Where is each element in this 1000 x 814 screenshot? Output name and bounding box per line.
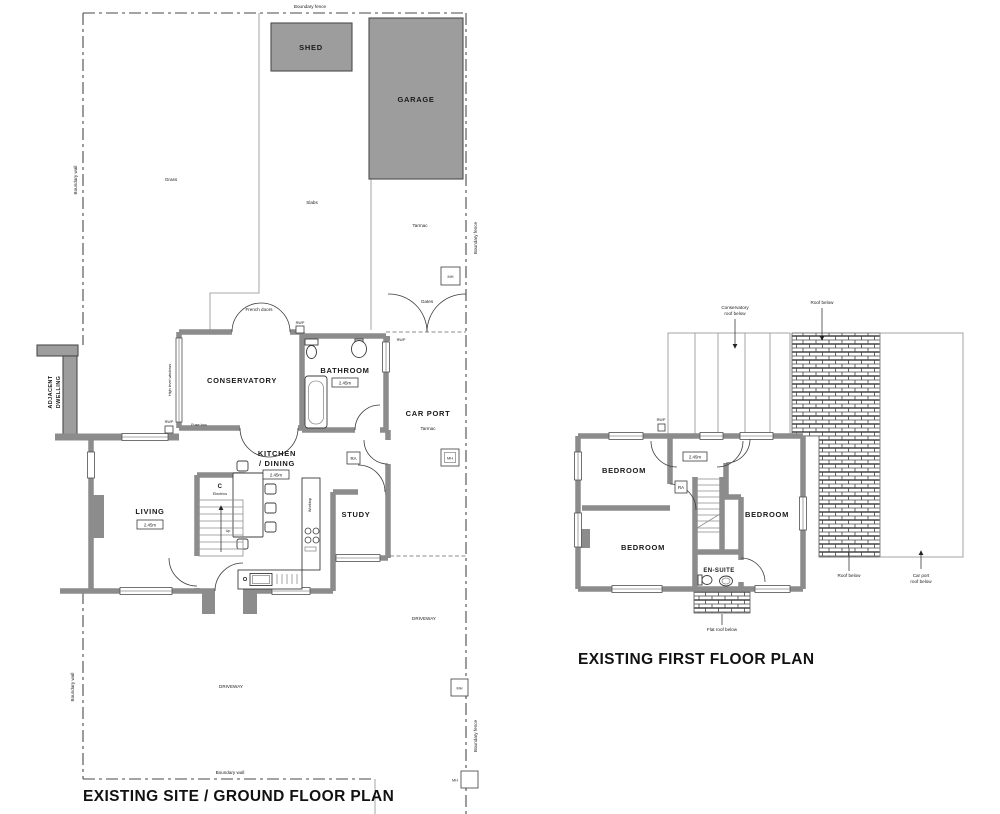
manhole-top: MH — [441, 267, 460, 285]
high-level-windows-label: High level windows — [168, 364, 172, 396]
driveway-label-east: DRIVEWAY — [412, 616, 436, 621]
chair — [237, 539, 248, 549]
room-label-kitchen: KITCHEN — [258, 449, 296, 458]
adjacent-dwelling-wall-side — [63, 356, 77, 437]
kitchen-height-tag: 2.45m — [263, 470, 289, 479]
manhole-top-label: MH — [448, 275, 454, 279]
wash-basin — [352, 341, 367, 358]
room-label-bedroom-2: BEDROOM — [621, 543, 665, 552]
conservatory-roof-label-2: roof below — [724, 311, 746, 316]
grass-label: Grass — [165, 177, 178, 182]
room-label-car-port: CAR PORT — [406, 409, 451, 418]
tarmac-label: Tarmac — [412, 223, 428, 228]
svg-text:2.45m: 2.45m — [144, 522, 157, 527]
manhole-right-mid-label: MH — [457, 687, 463, 691]
adjacent-dwelling: ADJACENT DWELLING — [37, 345, 78, 437]
stairs-first — [697, 479, 720, 550]
room-label-dining: / DINING — [259, 459, 295, 468]
porch-pillar-left — [202, 592, 215, 614]
room-label-bedroom-1: BEDROOM — [602, 466, 646, 475]
rwp-living-west: RWP — [165, 420, 174, 433]
rwp-first: RWP — [657, 418, 666, 431]
car-port-roof — [880, 333, 963, 557]
wash-basin — [720, 576, 733, 586]
manhole-car-port: MH — [441, 449, 459, 466]
shed-label: SHED — [299, 43, 323, 52]
toilet-cistern — [305, 339, 318, 345]
dining-table — [233, 473, 263, 537]
ground-floor-plan: Up CONSERVATORY BATHROOM 2.45m KITCHEN /… — [55, 303, 406, 614]
ground-floor-title: EXISTING SITE / GROUND FLOOR PLAN — [83, 788, 394, 805]
electrics-label: Electrics — [213, 492, 227, 496]
toilet-bowl — [307, 346, 317, 359]
adjacent-dwelling-wall-top — [37, 345, 78, 356]
chair — [265, 503, 276, 513]
svg-text:RWP: RWP — [296, 321, 305, 325]
boundary-wall-bottom-label: Boundary wall — [216, 770, 245, 775]
tiled-roof-lower — [819, 436, 880, 557]
boundary-fence-right-lower-label: Boundary fence — [473, 719, 478, 752]
manhole-bottom-label: MH — [452, 779, 458, 783]
svg-text:RA: RA — [678, 485, 684, 490]
roof-below-bottom-label: Roof below — [838, 573, 862, 578]
boundary-fence-right-label: Boundary fence — [473, 221, 478, 254]
chair — [265, 484, 276, 494]
sink-tap — [243, 577, 246, 580]
living-height-tag: 2.45m — [137, 520, 163, 529]
boundary-wall-left-label: Boundary wall — [73, 166, 78, 195]
ra-box-kitchen: RA — [347, 452, 360, 464]
room-label-living: LIVING — [135, 507, 164, 516]
svg-text:MH: MH — [447, 457, 453, 461]
ensuite-fixtures — [698, 575, 733, 586]
car-port-roof-label-1: Car port — [913, 573, 930, 578]
window — [88, 452, 95, 478]
manhole-right-mid: MH — [451, 679, 468, 696]
car-port: CAR PORT Tarmac MH — [390, 409, 466, 556]
grass-plot-outline — [210, 13, 259, 330]
room-label-ensuite: EN-SUITE — [703, 568, 734, 574]
chair — [265, 522, 276, 532]
worktop — [302, 478, 320, 570]
first-floor-title: EXISTING FIRST FLOOR PLAN — [578, 651, 814, 668]
conservatory-roof-panels — [695, 333, 770, 436]
conservatory-roof-label-1: Conservatory — [721, 305, 749, 310]
stair-cupboard — [697, 532, 720, 550]
rwp-conservatory: RWP — [296, 321, 305, 333]
gates-label: Gates — [421, 299, 434, 304]
room-label-bathroom: BATHROOM — [320, 366, 369, 375]
flat-roof-label: Flat roof below — [707, 627, 738, 632]
floor-plan-drawing: Boundary fence Boundary wall Boundary wa… — [0, 0, 1000, 814]
gates: Gates — [386, 294, 466, 332]
worktop-label: Worktop — [308, 498, 312, 512]
chimney-breast — [91, 495, 104, 538]
svg-text:RA: RA — [350, 456, 356, 461]
first-floor-height-tag: 2.45m — [683, 452, 707, 461]
room-label-study: STUDY — [342, 510, 371, 519]
cupboard-label: C — [218, 484, 223, 490]
svg-text:2.45m: 2.45m — [270, 472, 283, 477]
room-label-conservatory: CONSERVATORY — [207, 376, 277, 385]
toilet-bowl — [702, 576, 712, 585]
garage-label: GARAGE — [397, 95, 434, 104]
room-label-bedroom-3: BEDROOM — [745, 510, 789, 519]
car-port-tarmac-label: Tarmac — [420, 426, 436, 431]
french-doors-label: French doors — [245, 307, 273, 312]
chair — [237, 461, 248, 471]
kitchen-fixtures — [233, 461, 320, 589]
porch-pillar-right — [243, 592, 257, 614]
tiled-roof-upper — [792, 333, 880, 436]
ra-box-first: RA — [675, 481, 687, 493]
car-port-roof-label-2: roof below — [910, 579, 932, 584]
roof-below-top-label: Roof below — [811, 300, 835, 305]
slabs-label: Slabs — [306, 200, 318, 205]
first-floor-plan: Conservatory roof below Roof below Roof … — [575, 300, 964, 632]
toilet-cistern — [698, 575, 702, 585]
bathroom-height-tag: 2.45m — [332, 378, 358, 387]
flat-roof-hatch — [694, 592, 750, 613]
boundary-fence-top-label: Boundary fence — [294, 4, 327, 9]
driveway-label-south: DRIVEWAY — [219, 684, 243, 689]
fuse-box-label: Fuse box — [191, 423, 207, 427]
boundary-wall-left-lower-label: Boundary wall — [70, 673, 75, 702]
manhole-bottom: MH — [452, 771, 478, 788]
adjacent-dwelling-label-1: ADJACENT — [48, 375, 54, 408]
svg-text:2.45m: 2.45m — [339, 380, 352, 385]
stairs-up-label: Up — [226, 529, 231, 533]
svg-text:RWP: RWP — [657, 418, 666, 422]
svg-text:RWP: RWP — [397, 338, 406, 342]
stair-treads-first — [697, 485, 720, 528]
adjacent-dwelling-label-2: DWELLING — [56, 376, 62, 409]
svg-text:RWP: RWP — [165, 420, 174, 424]
conservatory-roof — [668, 333, 790, 436]
svg-text:2.45m: 2.45m — [689, 454, 702, 459]
architectural-drawing-page: Boundary fence Boundary wall Boundary wa… — [0, 0, 1000, 814]
